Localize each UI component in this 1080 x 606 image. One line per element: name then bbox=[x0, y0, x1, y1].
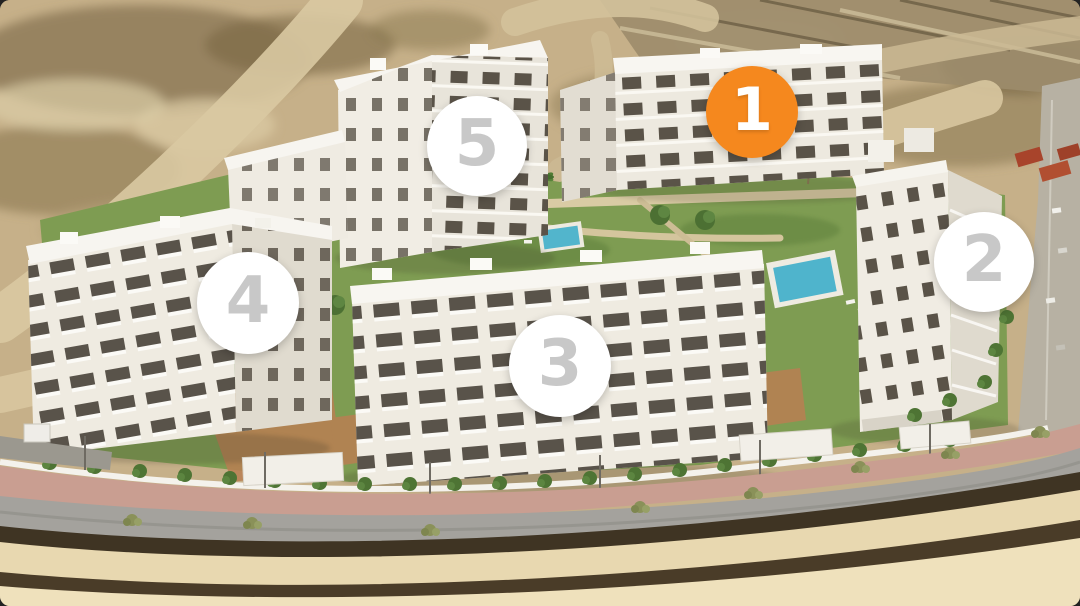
aerial-render bbox=[0, 0, 1080, 606]
marker-number: 5 bbox=[455, 112, 500, 176]
building-marker-1[interactable]: 1 bbox=[706, 66, 798, 158]
site-plan: 1 2 3 4 5 bbox=[0, 0, 1080, 606]
building-marker-4[interactable]: 4 bbox=[197, 252, 299, 354]
marker-number: 4 bbox=[226, 269, 271, 333]
building-marker-5[interactable]: 5 bbox=[427, 96, 527, 196]
building-marker-3[interactable]: 3 bbox=[509, 315, 611, 417]
marker-number: 3 bbox=[538, 332, 583, 396]
marker-number: 1 bbox=[731, 80, 773, 140]
marker-number: 2 bbox=[962, 228, 1007, 292]
building-marker-2[interactable]: 2 bbox=[934, 212, 1034, 312]
